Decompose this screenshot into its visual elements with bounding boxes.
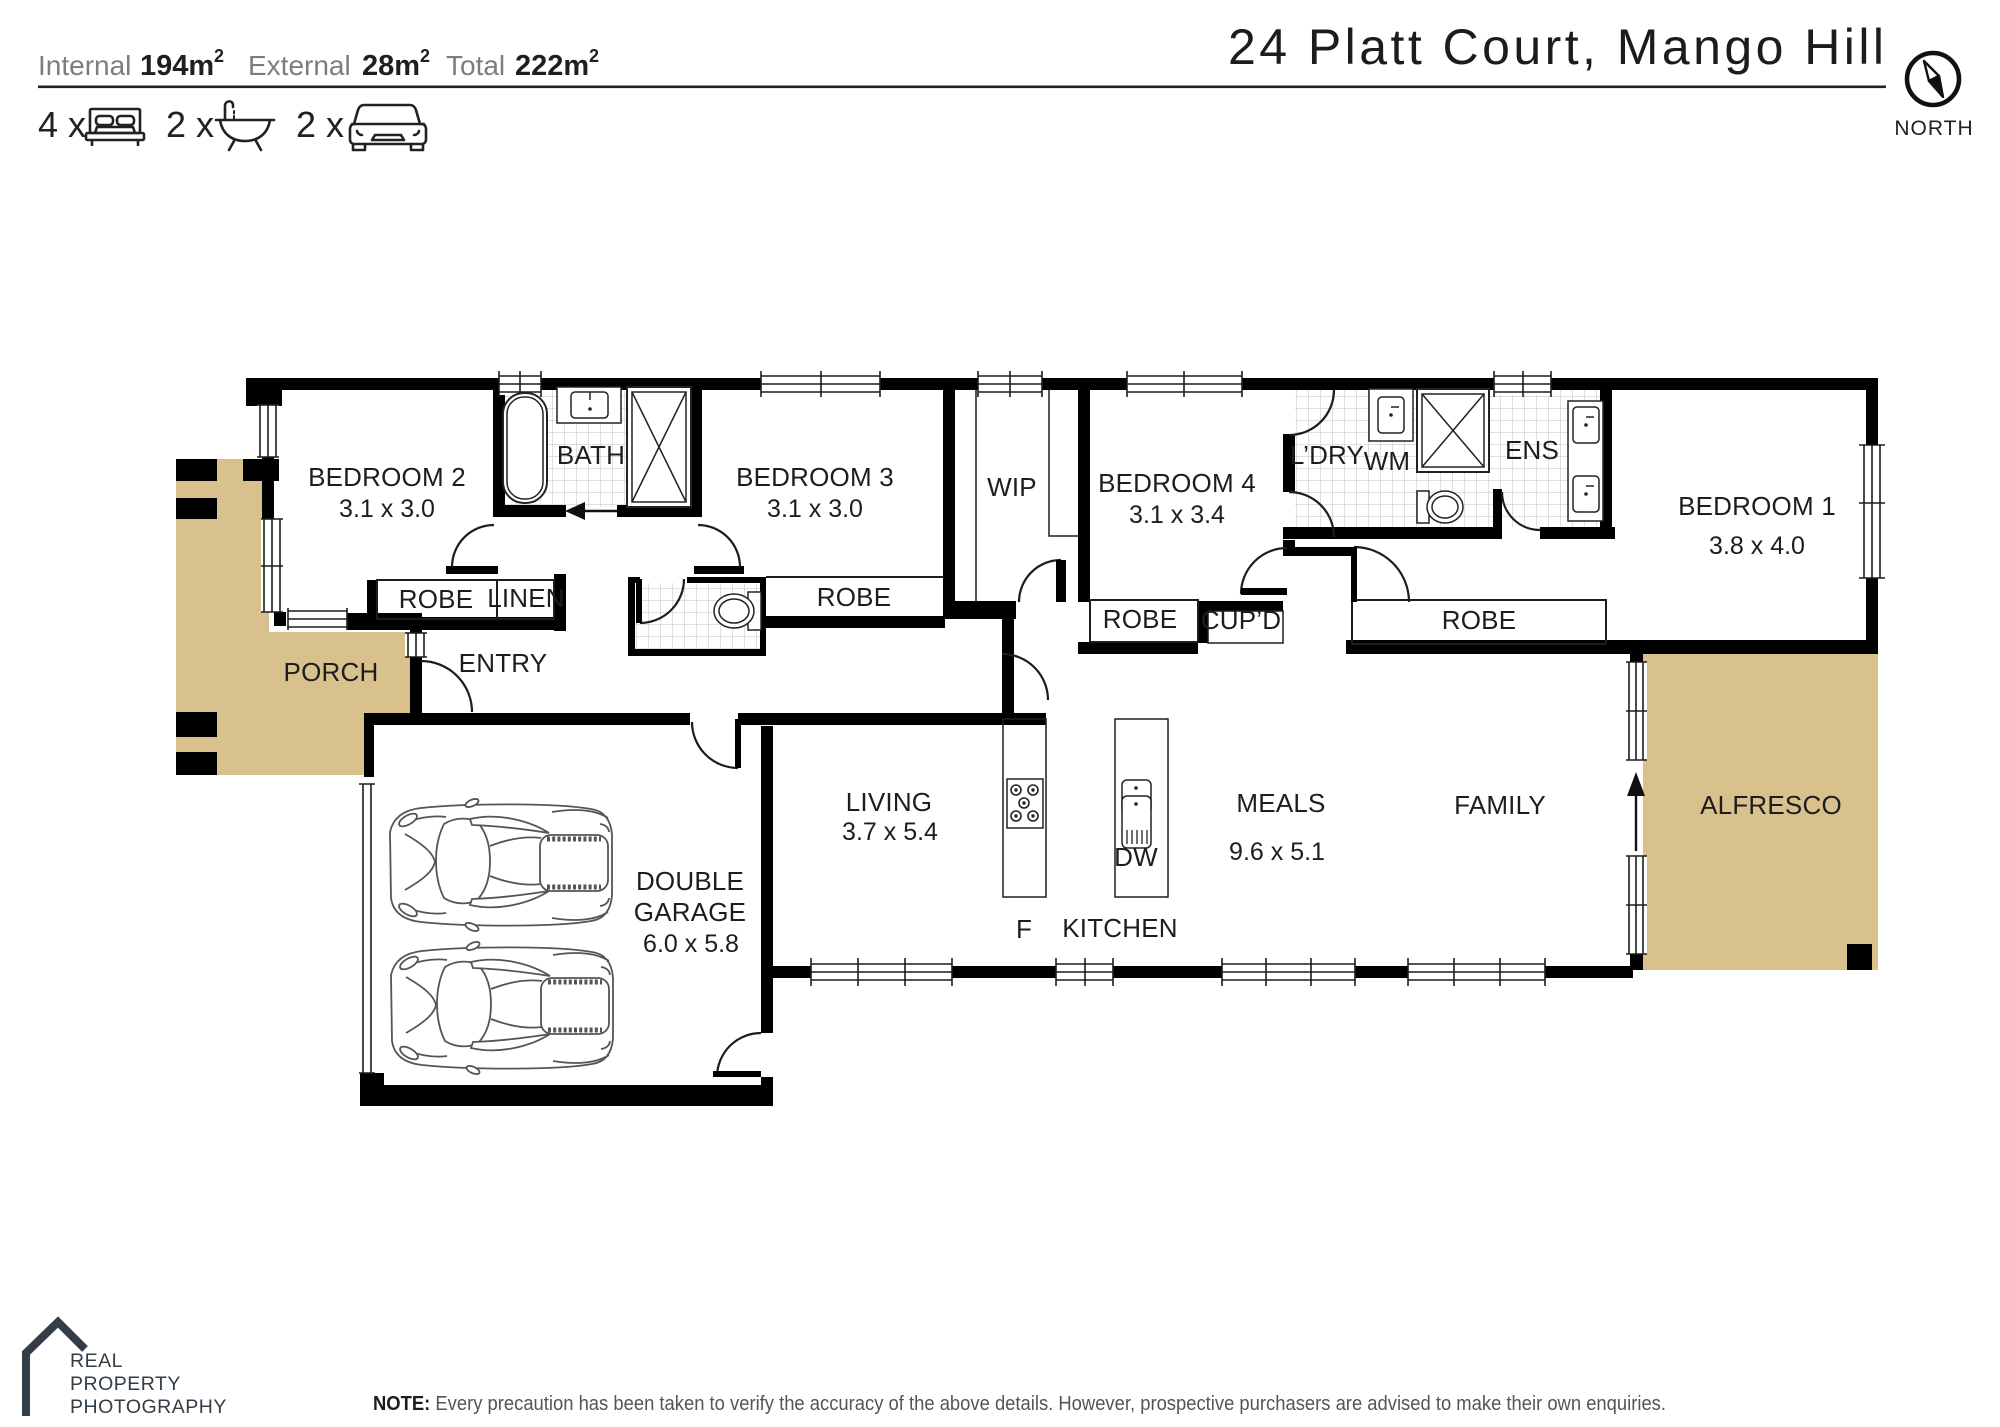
svg-text:3.7 x 5.4: 3.7 x 5.4 bbox=[842, 818, 938, 846]
svg-text:PORCH: PORCH bbox=[284, 657, 379, 687]
svg-text:2: 2 bbox=[214, 46, 224, 66]
svg-text:NORTH: NORTH bbox=[1894, 117, 1973, 140]
svg-text:Internal: Internal bbox=[38, 50, 131, 81]
svg-text:PROPERTY: PROPERTY bbox=[70, 1373, 181, 1395]
svg-text:ROBE: ROBE bbox=[817, 582, 891, 612]
svg-text:BEDROOM 4: BEDROOM 4 bbox=[1098, 468, 1256, 498]
svg-text:6.0 x 5.8: 6.0 x 5.8 bbox=[643, 930, 739, 958]
svg-text:ROBE: ROBE bbox=[1442, 605, 1516, 635]
svg-text:F: F bbox=[1016, 914, 1032, 944]
svg-text:GARAGE: GARAGE bbox=[634, 897, 746, 927]
svg-text:ENTRY: ENTRY bbox=[459, 648, 548, 678]
svg-text:External: External bbox=[248, 50, 351, 81]
svg-text:NOTE: Every precaution has bee: NOTE: Every precaution has been taken to… bbox=[373, 1393, 1666, 1415]
svg-text:194m: 194m bbox=[140, 50, 214, 82]
svg-text:WIP: WIP bbox=[987, 472, 1037, 502]
svg-text:BATH: BATH bbox=[557, 440, 625, 470]
svg-text:BEDROOM 2: BEDROOM 2 bbox=[308, 462, 466, 492]
svg-text:2 x: 2 x bbox=[296, 104, 344, 145]
svg-text:ENS: ENS bbox=[1505, 435, 1559, 465]
svg-text:CUP’D: CUP’D bbox=[1201, 605, 1281, 635]
svg-text:REAL: REAL bbox=[70, 1350, 123, 1372]
svg-text:3.1 x 3.0: 3.1 x 3.0 bbox=[339, 495, 435, 523]
svg-text:2 x: 2 x bbox=[166, 104, 214, 145]
svg-text:WM: WM bbox=[1364, 446, 1411, 476]
svg-text:3.8 x 4.0: 3.8 x 4.0 bbox=[1709, 532, 1805, 560]
svg-text:LINEN: LINEN bbox=[487, 583, 565, 613]
svg-text:Total: Total bbox=[446, 50, 505, 81]
svg-text:KITCHEN: KITCHEN bbox=[1062, 913, 1178, 943]
svg-text:DW: DW bbox=[1114, 842, 1158, 872]
svg-text:222m: 222m bbox=[515, 50, 589, 82]
svg-text:28m: 28m bbox=[362, 50, 420, 82]
svg-text:ROBE: ROBE bbox=[1103, 604, 1177, 634]
svg-text:9.6 x 5.1: 9.6 x 5.1 bbox=[1229, 838, 1325, 866]
svg-text:L’DRY: L’DRY bbox=[1290, 440, 1364, 470]
svg-text:LIVING: LIVING bbox=[846, 787, 932, 817]
svg-text:BEDROOM 1: BEDROOM 1 bbox=[1678, 491, 1836, 521]
svg-text:ALFRESCO: ALFRESCO bbox=[1700, 790, 1842, 820]
svg-text:PHOTOGRAPHY: PHOTOGRAPHY bbox=[70, 1396, 227, 1418]
svg-text:3.1 x 3.4: 3.1 x 3.4 bbox=[1129, 501, 1225, 529]
svg-text:ROBE: ROBE bbox=[399, 584, 473, 614]
svg-text:MEALS: MEALS bbox=[1236, 788, 1325, 818]
svg-text:FAMILY: FAMILY bbox=[1454, 790, 1546, 820]
svg-text:3.1 x 3.0: 3.1 x 3.0 bbox=[767, 495, 863, 523]
svg-text:BEDROOM 3: BEDROOM 3 bbox=[736, 462, 894, 492]
svg-text:2: 2 bbox=[420, 46, 430, 66]
svg-text:2: 2 bbox=[589, 46, 599, 66]
svg-text:DOUBLE: DOUBLE bbox=[636, 866, 744, 896]
svg-text:4 x: 4 x bbox=[38, 104, 86, 145]
